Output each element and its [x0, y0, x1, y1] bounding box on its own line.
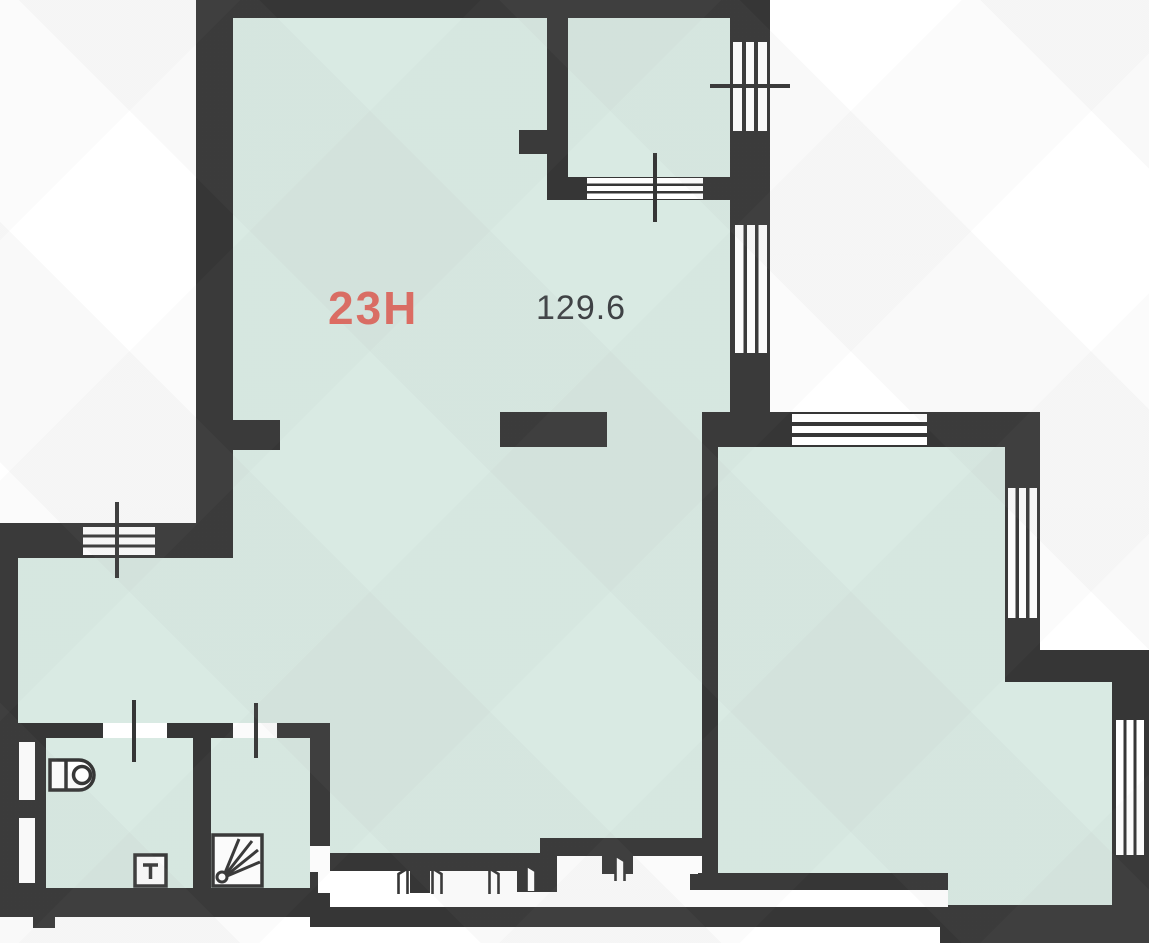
window-topright-bottom: [587, 178, 703, 199]
wall-entry-a: [310, 853, 540, 871]
door-entry-3: [557, 856, 602, 874]
wall-step-bottom-left: [33, 917, 55, 928]
unit-area-label: 129.6: [536, 289, 626, 328]
wall-service-partition: [193, 738, 211, 888]
wall-partition-center: [702, 412, 718, 890]
room-entry-floor-b: [540, 723, 702, 840]
porch-step-right: [690, 890, 948, 907]
wall-stub-small-room: [519, 130, 547, 154]
wall-service-bottom: [0, 888, 330, 917]
window-far-right: [1116, 720, 1144, 855]
window-rightroom-right: [1008, 488, 1037, 618]
room-topright-floor: [568, 18, 730, 177]
wall-bottom-middle: [310, 907, 948, 927]
door-leaf-icon: [487, 867, 501, 895]
opening-left-wall-1: [19, 742, 35, 800]
floor-plan: 23H 129.6: [0, 0, 1149, 943]
tick-window-topright-r: [710, 84, 790, 88]
wall-left-vertical: [0, 523, 18, 738]
tick-door-bathroom: [132, 700, 136, 762]
room-entry-floor-a: [330, 723, 540, 855]
door-leaf-icon: [396, 867, 410, 895]
toilet-icon: [48, 758, 100, 792]
tick-window-left: [115, 502, 119, 578]
door-entry-4: [633, 856, 698, 874]
wall-right-porch: [690, 873, 948, 890]
window-left-wall: [83, 527, 155, 555]
unit-number-label: 23H: [328, 281, 418, 335]
opening-left-wall-2: [19, 818, 35, 883]
shower-icon: [211, 833, 264, 888]
wall-bottom-right: [940, 905, 1149, 943]
tick-door-service: [254, 703, 258, 758]
window-rightroom-top: [792, 414, 927, 445]
wall-room-divider-top: [547, 0, 568, 177]
room-right-floor: [718, 447, 1005, 905]
wall-stub-left: [233, 420, 280, 450]
door-leaf-icon: [430, 867, 444, 895]
window-right-band: [735, 225, 767, 353]
wall-freestanding-bar: [500, 412, 607, 447]
room-right-ext-floor: [1005, 682, 1112, 905]
tick-window-topright-b: [653, 153, 657, 222]
door-leaf-icon: [524, 864, 538, 892]
wall-service-top: [18, 723, 330, 738]
door-leaf-icon: [613, 854, 627, 882]
wall-left-upper: [196, 0, 233, 525]
room-main-lower-floor: [18, 558, 702, 723]
sink-icon: [133, 853, 168, 888]
wall-entry-pier-1: [410, 871, 430, 893]
wall-top: [196, 0, 770, 18]
door-service-side: [310, 846, 330, 872]
